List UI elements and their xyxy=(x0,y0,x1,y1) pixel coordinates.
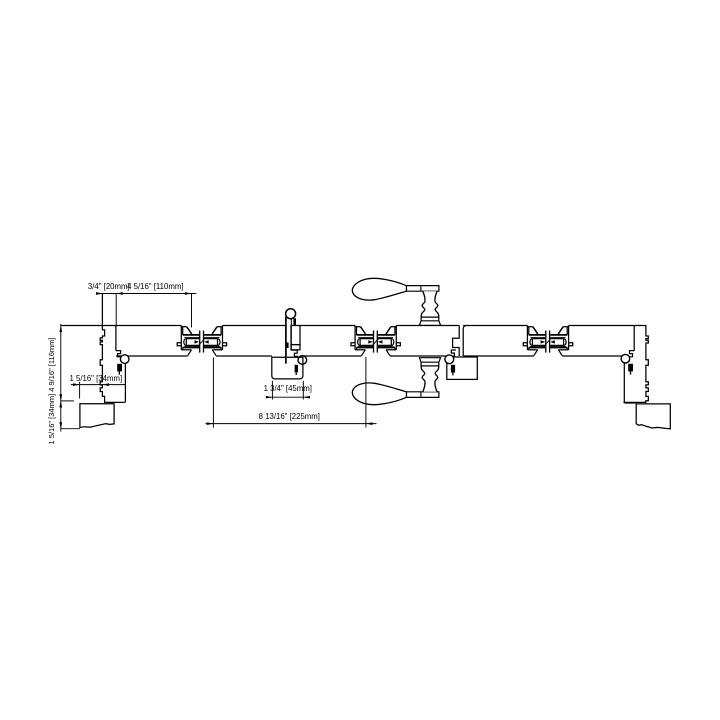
svg-text:1 5/16" [34mm] 4 9/16" [116mm]: 1 5/16" [34mm] 4 9/16" [116mm] xyxy=(47,338,56,445)
svg-text:8 13/16" [225mm]: 8 13/16" [225mm] xyxy=(259,412,320,421)
svg-text:4 5/16" [110mm]: 4 5/16" [110mm] xyxy=(127,282,183,291)
svg-text:1 3/4" [45mm]: 1 3/4" [45mm] xyxy=(264,384,312,393)
svg-text:1 5/16" [34mm]: 1 5/16" [34mm] xyxy=(69,374,122,383)
svg-text:3/4" [20mm]: 3/4" [20mm] xyxy=(88,282,130,291)
